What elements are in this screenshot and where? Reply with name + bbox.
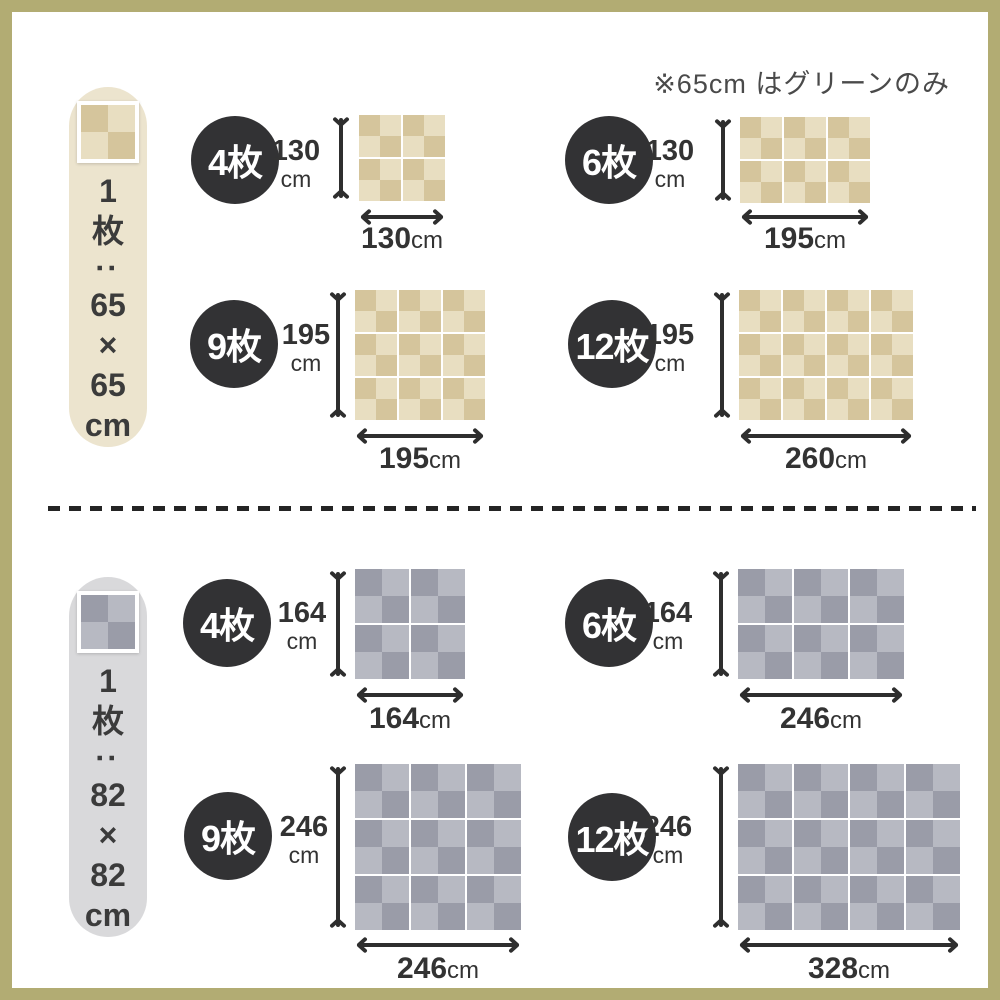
mat-tile: [355, 378, 397, 420]
mat-cell: [355, 764, 382, 791]
mat-cell: [382, 596, 409, 623]
height-unit: cm: [291, 350, 322, 376]
pill-char: 1: [99, 171, 117, 211]
height-unit: cm: [655, 350, 686, 376]
mat-tile: [403, 159, 445, 201]
mat-cell: [848, 399, 869, 420]
mat-cell: [355, 791, 382, 818]
mat-cell: [438, 625, 465, 652]
mat-cell: [738, 569, 765, 596]
width-label: 164cm: [340, 702, 480, 736]
mat-cell: [783, 334, 804, 355]
mat-cell: [828, 161, 849, 182]
pill-char: 65: [90, 365, 126, 405]
width-unit: cm: [447, 957, 479, 984]
mat-cell: [765, 791, 792, 818]
mat-tile: [783, 290, 825, 332]
mat-tile: [411, 876, 465, 930]
mat-cell: [740, 117, 761, 138]
mat-cell: [805, 161, 826, 182]
mat-cell: [784, 117, 805, 138]
mat-cell: [424, 180, 445, 201]
mat-cell: [411, 625, 438, 652]
mat-cell: [761, 161, 782, 182]
mat-cell: [411, 903, 438, 930]
mat-tile: [399, 334, 441, 376]
mat-cell: [443, 290, 464, 311]
mat-cell: [877, 791, 904, 818]
mat-cell: [933, 847, 960, 874]
mat-tile: [827, 378, 869, 420]
pill-char: 82: [90, 855, 126, 895]
width-value: 164: [369, 702, 419, 735]
mat-cell: [805, 138, 826, 159]
mat-cell: [464, 378, 485, 399]
mat-cell: [933, 791, 960, 818]
mat-tile: [738, 876, 792, 930]
mat-cell: [739, 399, 760, 420]
height-label: 195 cm: [634, 320, 706, 376]
mat-cell: [892, 399, 913, 420]
mat-tile: [850, 876, 904, 930]
piece-swatch-82-icon: [77, 591, 139, 653]
mat-cell: [871, 399, 892, 420]
width-unit: cm: [411, 227, 443, 254]
mat-cell: [821, 876, 848, 903]
mat-cell: [738, 652, 765, 679]
mat-cell: [740, 138, 761, 159]
height-arrow-icon: [712, 764, 730, 930]
mat-cell: [760, 378, 781, 399]
mat-cell: [382, 625, 409, 652]
mat-cell: [355, 311, 376, 332]
mat-tile: [794, 569, 848, 623]
pill-char: cm: [85, 895, 131, 935]
mat-cell: [738, 764, 765, 791]
mat-cell: [821, 847, 848, 874]
mat-cell: [783, 290, 804, 311]
mat-cell: [380, 180, 401, 201]
mat-cell: [399, 334, 420, 355]
mat-cell: [892, 355, 913, 376]
count-badge-9: 9枚: [190, 300, 278, 388]
mat-cell: [494, 791, 521, 818]
mat-cell: [438, 596, 465, 623]
mat-cell: [877, 625, 904, 652]
width-value: 246: [397, 952, 447, 985]
mat-cell: [438, 652, 465, 679]
mat-cell: [850, 847, 877, 874]
mat-cell: [420, 311, 441, 332]
mat-cell: [443, 378, 464, 399]
pill-char: cm: [85, 405, 131, 445]
mat-cell: [411, 820, 438, 847]
mat-tile: [906, 764, 960, 818]
mat-tile: [403, 115, 445, 157]
width-label: 328cm: [779, 952, 919, 986]
mat-cell: [765, 820, 792, 847]
width-label: 130cm: [332, 222, 472, 256]
height-unit: cm: [655, 166, 686, 192]
piece-size-pill-65: 1 枚 : 65 × 65 cm: [69, 87, 147, 447]
mat-tile: [794, 876, 848, 930]
mat-layout-diagram: [359, 115, 445, 201]
mat-cell: [805, 182, 826, 203]
mat-tile: [794, 820, 848, 874]
mat-cell: [827, 378, 848, 399]
mat-cell: [828, 117, 849, 138]
mat-cell: [740, 161, 761, 182]
mat-cell: [804, 355, 825, 376]
mat-cell: [376, 399, 397, 420]
mat-layout-diagram: [355, 764, 521, 930]
mat-cell: [794, 903, 821, 930]
mat-cell: [376, 311, 397, 332]
mat-cell: [794, 569, 821, 596]
mat-cell: [783, 311, 804, 332]
mat-cell: [906, 847, 933, 874]
mat-cell: [739, 355, 760, 376]
mat-cell: [399, 355, 420, 376]
mat-cell: [411, 596, 438, 623]
mat-tile: [467, 764, 521, 818]
mat-cell: [420, 399, 441, 420]
mat-cell: [821, 596, 848, 623]
mat-tile: [739, 378, 781, 420]
height-value: 246: [644, 812, 692, 842]
mat-cell: [850, 903, 877, 930]
mat-cell: [850, 596, 877, 623]
mat-tile: [850, 625, 904, 679]
mat-cell: [420, 355, 441, 376]
pill-char: ×: [99, 815, 118, 855]
mat-cell: [827, 399, 848, 420]
mat-tile: [355, 820, 409, 874]
mat-tile: [739, 334, 781, 376]
mat-cell: [783, 378, 804, 399]
height-value: 130: [646, 136, 694, 166]
mat-cell: [877, 903, 904, 930]
mat-cell: [467, 876, 494, 903]
mat-cell: [821, 820, 848, 847]
mat-cell: [359, 180, 380, 201]
mat-cell: [850, 876, 877, 903]
width-unit: cm: [858, 957, 890, 984]
mat-tile: [411, 625, 465, 679]
mat-tile: [738, 764, 792, 818]
width-unit: cm: [830, 707, 862, 734]
mat-cell: [794, 847, 821, 874]
mat-cell: [443, 355, 464, 376]
mat-cell: [783, 399, 804, 420]
mat-cell: [382, 847, 409, 874]
mat-cell: [850, 791, 877, 818]
mat-cell: [761, 117, 782, 138]
mat-cell: [794, 791, 821, 818]
count-badge-9: 9枚: [184, 792, 272, 880]
mat-tile: [359, 115, 401, 157]
mat-cell: [399, 378, 420, 399]
mat-cell: [382, 764, 409, 791]
mat-cell: [376, 355, 397, 376]
mat-cell: [877, 569, 904, 596]
mat-tile: [738, 820, 792, 874]
mat-cell: [871, 334, 892, 355]
mat-cell: [821, 569, 848, 596]
mat-cell: [355, 820, 382, 847]
mat-cell: [849, 182, 870, 203]
height-value: 246: [280, 812, 328, 842]
mat-tile: [906, 820, 960, 874]
mat-cell: [933, 820, 960, 847]
mat-tile: [738, 569, 792, 623]
mat-cell: [403, 159, 424, 180]
mat-cell: [765, 569, 792, 596]
mat-tile: [794, 764, 848, 818]
mat-cell: [494, 820, 521, 847]
mat-tile: [827, 334, 869, 376]
mat-tile: [740, 117, 782, 159]
mat-cell: [355, 399, 376, 420]
mat-cell: [411, 652, 438, 679]
mat-cell: [467, 847, 494, 874]
piece-size-pill-82: 1 枚 : 82 × 82 cm: [69, 577, 147, 937]
pill-char: :: [91, 753, 125, 764]
mat-cell: [494, 876, 521, 903]
mat-cell: [877, 876, 904, 903]
mat-cell: [494, 847, 521, 874]
mat-layout-diagram: [740, 117, 870, 203]
mat-tile: [443, 378, 485, 420]
mat-cell: [359, 115, 380, 136]
mat-tile: [355, 334, 397, 376]
mat-tile: [443, 334, 485, 376]
mat-cell: [738, 625, 765, 652]
height-label: 246 cm: [632, 812, 704, 868]
mat-cell: [760, 355, 781, 376]
mat-cell: [821, 625, 848, 652]
mat-cell: [848, 378, 869, 399]
mat-cell: [382, 791, 409, 818]
mat-cell: [355, 625, 382, 652]
width-value: 130: [361, 222, 411, 255]
mat-cell: [438, 903, 465, 930]
mat-cell: [443, 399, 464, 420]
swatch-cell: [81, 595, 108, 622]
mat-cell: [906, 791, 933, 818]
mat-cell: [849, 138, 870, 159]
mat-tile: [399, 378, 441, 420]
mat-cell: [892, 334, 913, 355]
mat-layout-diagram: [739, 290, 913, 420]
width-value: 195: [764, 222, 814, 255]
height-unit: cm: [653, 842, 684, 868]
width-label: 195cm: [735, 222, 875, 256]
mat-cell: [376, 290, 397, 311]
mat-cell: [765, 625, 792, 652]
mat-tile: [355, 876, 409, 930]
mat-cell: [850, 569, 877, 596]
height-label: 130 cm: [634, 136, 706, 192]
mat-cell: [738, 791, 765, 818]
swatch-cell: [81, 132, 108, 159]
mat-cell: [821, 791, 848, 818]
mat-cell: [821, 764, 848, 791]
mat-cell: [380, 115, 401, 136]
count-badge-4: 4枚: [183, 579, 271, 667]
mat-cell: [739, 378, 760, 399]
mat-cell: [850, 652, 877, 679]
mat-tile: [906, 876, 960, 930]
mat-cell: [467, 903, 494, 930]
mat-cell: [494, 764, 521, 791]
mat-tile: [871, 378, 913, 420]
mat-cell: [411, 569, 438, 596]
width-value: 195: [379, 442, 429, 475]
height-arrow-icon: [332, 115, 350, 201]
mat-tile: [784, 161, 826, 203]
mat-tile: [794, 625, 848, 679]
height-unit: cm: [281, 166, 312, 192]
width-unit: cm: [429, 447, 461, 474]
mat-cell: [403, 115, 424, 136]
mat-cell: [892, 311, 913, 332]
height-unit: cm: [287, 628, 318, 654]
mat-cell: [411, 791, 438, 818]
mat-cell: [760, 334, 781, 355]
height-arrow-icon: [329, 764, 347, 930]
height-arrow-icon: [329, 290, 347, 420]
swatch-cell: [108, 105, 135, 132]
mat-tile: [850, 820, 904, 874]
mat-layout-diagram: [355, 290, 485, 420]
height-unit: cm: [653, 628, 684, 654]
mat-cell: [355, 290, 376, 311]
width-label: 246cm: [368, 952, 508, 986]
pill-char: 82: [90, 775, 126, 815]
mat-cell: [464, 399, 485, 420]
mat-tile: [399, 290, 441, 332]
mat-cell: [933, 764, 960, 791]
height-label: 164 cm: [632, 598, 704, 654]
mat-cell: [355, 847, 382, 874]
mat-cell: [805, 117, 826, 138]
mat-cell: [355, 652, 382, 679]
mat-cell: [821, 652, 848, 679]
mat-cell: [760, 311, 781, 332]
mat-cell: [850, 764, 877, 791]
mat-cell: [871, 311, 892, 332]
pill-char: ×: [99, 325, 118, 365]
mat-cell: [376, 334, 397, 355]
mat-tile: [871, 334, 913, 376]
pill-char: 枚: [92, 211, 124, 251]
mat-cell: [382, 820, 409, 847]
mat-tile: [411, 569, 465, 623]
mat-cell: [877, 764, 904, 791]
width-label: 260cm: [756, 442, 896, 476]
mat-cell: [738, 820, 765, 847]
mat-cell: [380, 136, 401, 157]
mat-cell: [740, 182, 761, 203]
mat-cell: [848, 290, 869, 311]
mat-cell: [849, 117, 870, 138]
mat-cell: [382, 876, 409, 903]
mat-cell: [380, 159, 401, 180]
pill-char: 枚: [92, 701, 124, 741]
mat-cell: [738, 903, 765, 930]
mat-cell: [906, 820, 933, 847]
mat-tile: [359, 159, 401, 201]
mat-cell: [906, 903, 933, 930]
mat-cell: [359, 136, 380, 157]
mat-tile: [850, 764, 904, 818]
mat-tile: [783, 334, 825, 376]
mat-cell: [355, 355, 376, 376]
mat-cell: [739, 290, 760, 311]
mat-cell: [382, 569, 409, 596]
mat-cell: [821, 903, 848, 930]
mat-tile: [739, 290, 781, 332]
width-value: 260: [785, 442, 835, 475]
mat-cell: [399, 399, 420, 420]
mat-cell: [443, 311, 464, 332]
mat-cell: [464, 311, 485, 332]
mat-cell: [420, 334, 441, 355]
mat-cell: [411, 876, 438, 903]
mat-cell: [420, 378, 441, 399]
size-guide-infographic: ※65cm はグリーンのみ 1 枚 : 65 × 65 cm 1 枚 : 82 …: [0, 0, 1000, 1000]
height-arrow-icon: [712, 569, 730, 679]
mat-cell: [761, 182, 782, 203]
mat-cell: [424, 115, 445, 136]
mat-cell: [765, 876, 792, 903]
mat-tile: [784, 117, 826, 159]
width-label: 246cm: [751, 702, 891, 736]
mat-cell: [494, 903, 521, 930]
height-value: 164: [278, 598, 326, 628]
mat-cell: [933, 876, 960, 903]
mat-cell: [467, 791, 494, 818]
mat-cell: [877, 596, 904, 623]
mat-cell: [784, 161, 805, 182]
mat-cell: [424, 136, 445, 157]
mat-cell: [804, 311, 825, 332]
mat-cell: [794, 596, 821, 623]
height-value: 130: [272, 136, 320, 166]
height-arrow-icon: [714, 117, 732, 203]
mat-cell: [784, 138, 805, 159]
mat-cell: [355, 903, 382, 930]
mat-cell: [467, 820, 494, 847]
mat-cell: [438, 820, 465, 847]
height-value: 164: [644, 598, 692, 628]
mat-cell: [359, 159, 380, 180]
piece-size-label-82: 1 枚 : 82 × 82 cm: [85, 661, 131, 935]
width-label: 195cm: [350, 442, 490, 476]
pill-char: 1: [99, 661, 117, 701]
swatch-cell: [81, 105, 108, 132]
mat-tile: [467, 820, 521, 874]
mat-cell: [827, 311, 848, 332]
mat-cell: [794, 625, 821, 652]
mat-cell: [467, 764, 494, 791]
mat-tile: [828, 161, 870, 203]
height-value: 195: [646, 320, 694, 350]
mat-cell: [794, 764, 821, 791]
mat-tile: [355, 290, 397, 332]
mat-cell: [399, 311, 420, 332]
